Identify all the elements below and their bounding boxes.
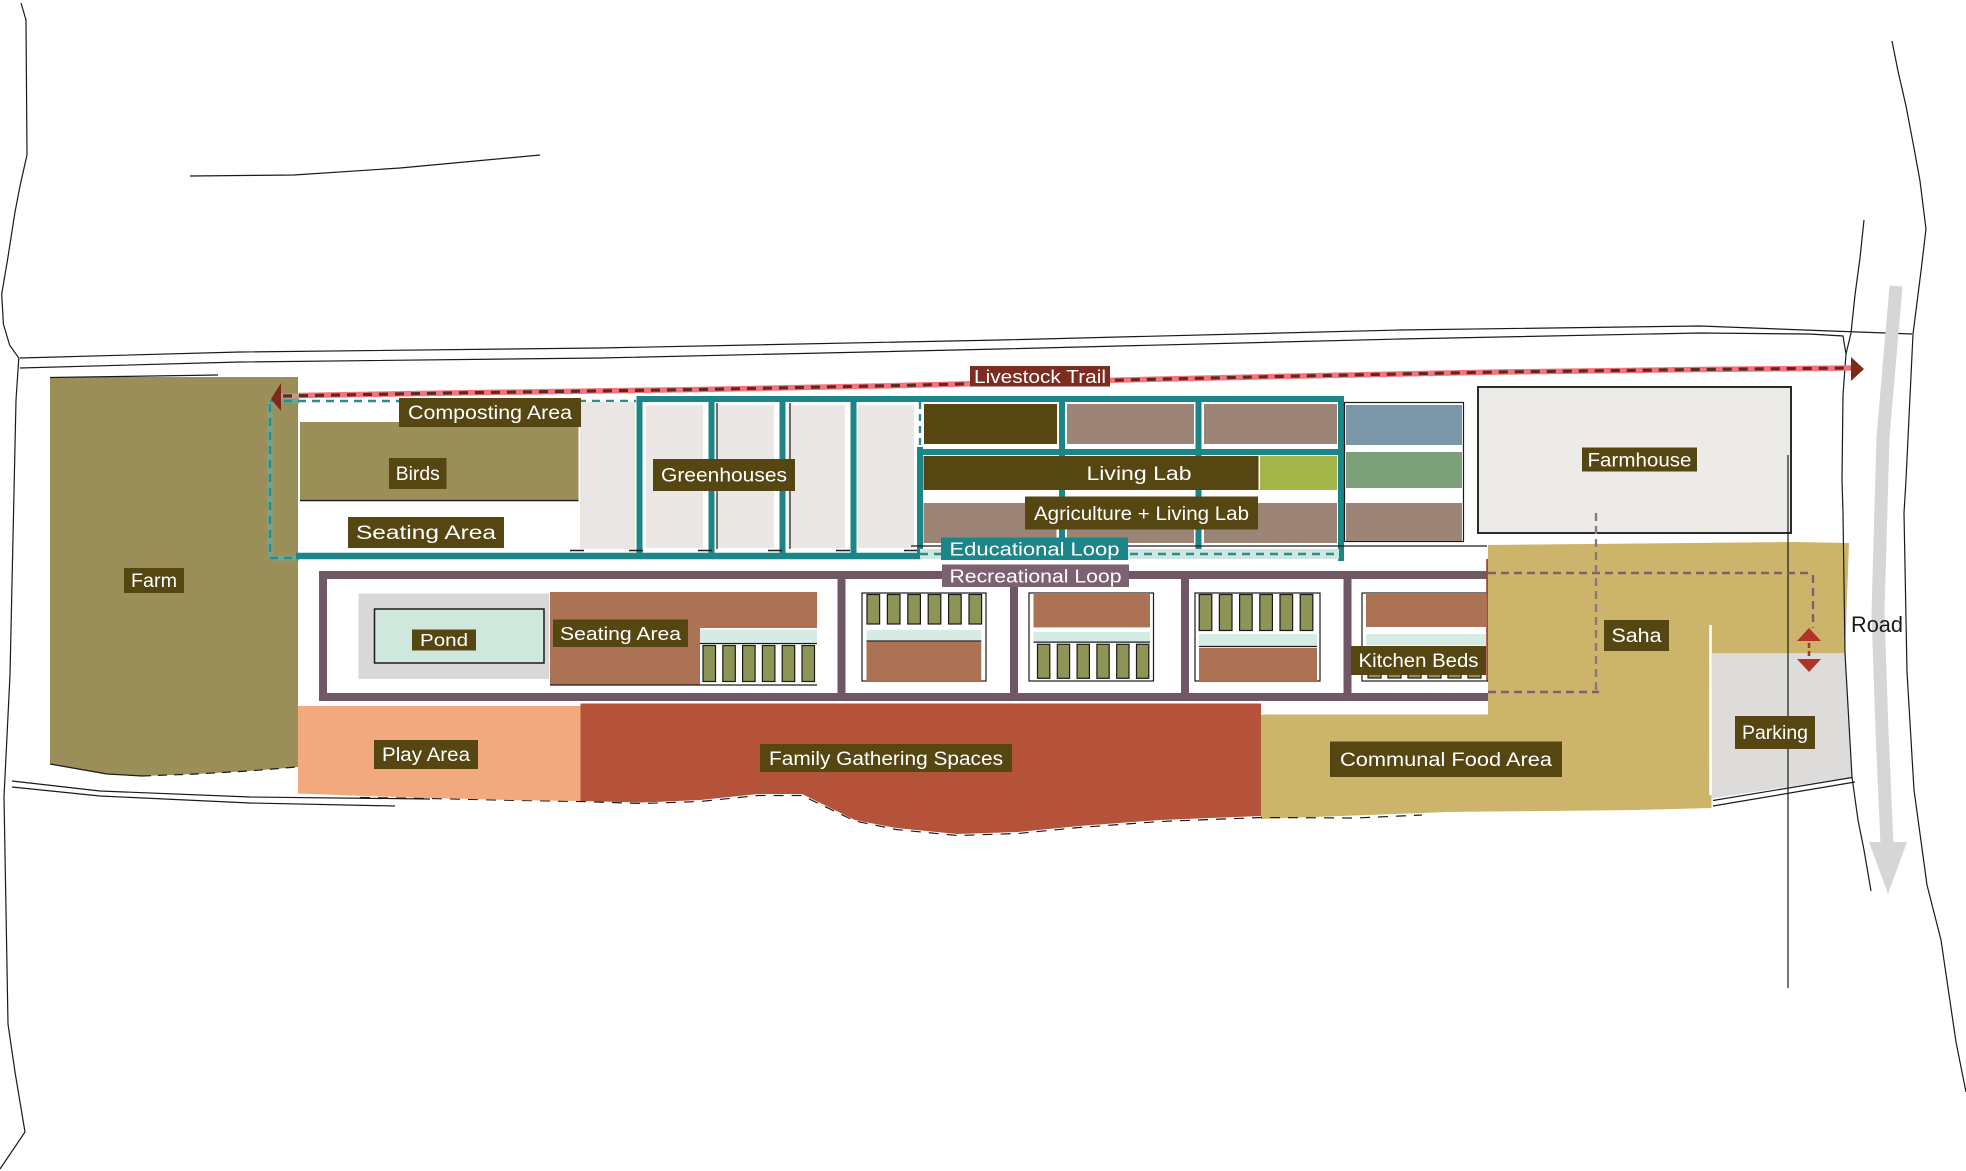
svg-text:Farmhouse: Farmhouse <box>1588 451 1692 472</box>
svg-text:Communal Food Area: Communal Food Area <box>1340 750 1552 771</box>
svg-text:Agriculture + Living Lab: Agriculture + Living Lab <box>1034 504 1249 525</box>
svg-text:Greenhouses: Greenhouses <box>661 466 787 487</box>
svg-text:Saha: Saha <box>1612 626 1662 647</box>
svg-text:Recreational Loop: Recreational Loop <box>950 566 1122 587</box>
svg-text:Livestock Trail: Livestock Trail <box>974 366 1106 387</box>
svg-text:Educational Loop: Educational Loop <box>950 539 1120 560</box>
svg-text:Seating Area: Seating Area <box>560 623 682 644</box>
svg-text:Parking: Parking <box>1742 723 1808 744</box>
svg-text:Kitchen Beds: Kitchen Beds <box>1359 651 1479 672</box>
svg-text:Road: Road <box>1851 612 1903 637</box>
svg-text:Play Area: Play Area <box>382 745 470 766</box>
svg-text:Pond: Pond <box>420 630 468 650</box>
svg-text:Composting Area: Composting Area <box>408 403 572 424</box>
svg-text:Living Lab: Living Lab <box>1087 464 1192 485</box>
svg-text:Family Gathering Spaces: Family Gathering Spaces <box>769 749 1003 770</box>
svg-text:Seating Area: Seating Area <box>356 523 497 544</box>
svg-text:Birds: Birds <box>396 464 440 485</box>
svg-text:Farm: Farm <box>131 571 177 592</box>
